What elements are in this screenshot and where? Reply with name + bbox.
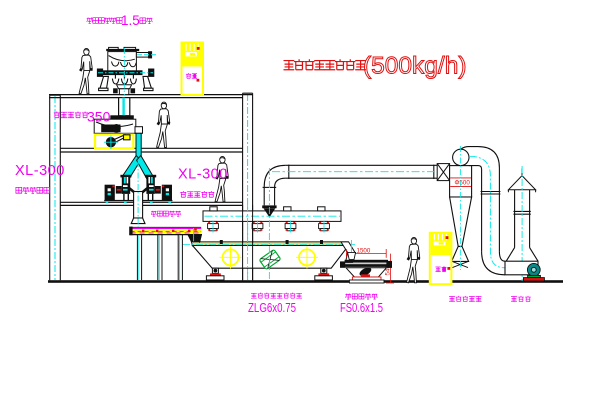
svg-text:XL-300: XL-300 (178, 167, 228, 183)
svg-text:(500kg/h): (500kg/h) (363, 53, 467, 80)
svg-text:ZLG6x0.75: ZLG6x0.75 (248, 301, 296, 315)
svg-text:XL-300: XL-300 (15, 163, 65, 179)
svg-text:Φ500: Φ500 (455, 180, 471, 187)
svg-text:1.5: 1.5 (121, 13, 140, 28)
svg-text:FS0.6x1.5: FS0.6x1.5 (340, 301, 383, 315)
svg-text:350: 350 (87, 109, 111, 125)
svg-text:1500: 1500 (357, 248, 371, 255)
